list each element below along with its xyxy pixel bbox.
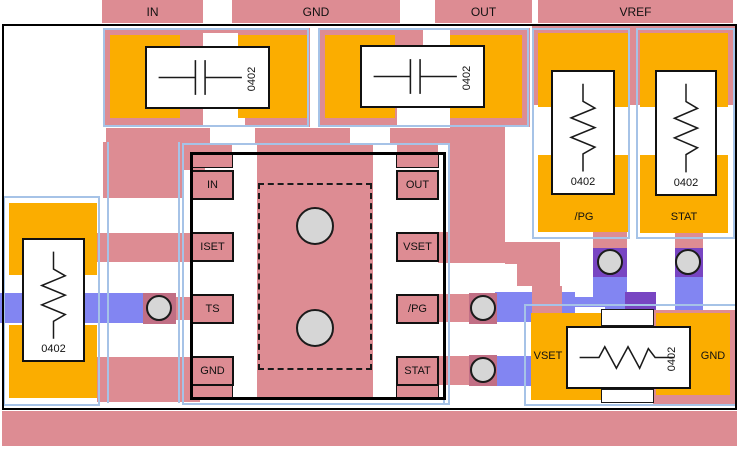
tab-gnd-label: GND	[303, 5, 330, 19]
copper-bar-bottom	[2, 411, 737, 446]
via-respg	[597, 249, 623, 275]
tab-vref: VREF	[538, 0, 733, 23]
via-thermal-1	[296, 207, 334, 245]
board-outline	[2, 24, 737, 410]
via-ts	[146, 295, 172, 321]
tab-gnd: GND	[232, 0, 400, 23]
via-stat-row	[470, 357, 496, 383]
via-thermal-2	[296, 309, 334, 347]
tab-in: IN	[102, 0, 203, 23]
tab-out-label: OUT	[471, 5, 496, 19]
via-pg-row	[470, 295, 496, 321]
pcb-layout-diagram: IN GND OUT VREF IN ISET TS GND OUT VSET …	[0, 0, 739, 450]
tab-vref-label: VREF	[619, 5, 651, 19]
tab-out: OUT	[435, 0, 532, 23]
tab-in-label: IN	[147, 5, 159, 19]
via-resstat	[675, 249, 701, 275]
